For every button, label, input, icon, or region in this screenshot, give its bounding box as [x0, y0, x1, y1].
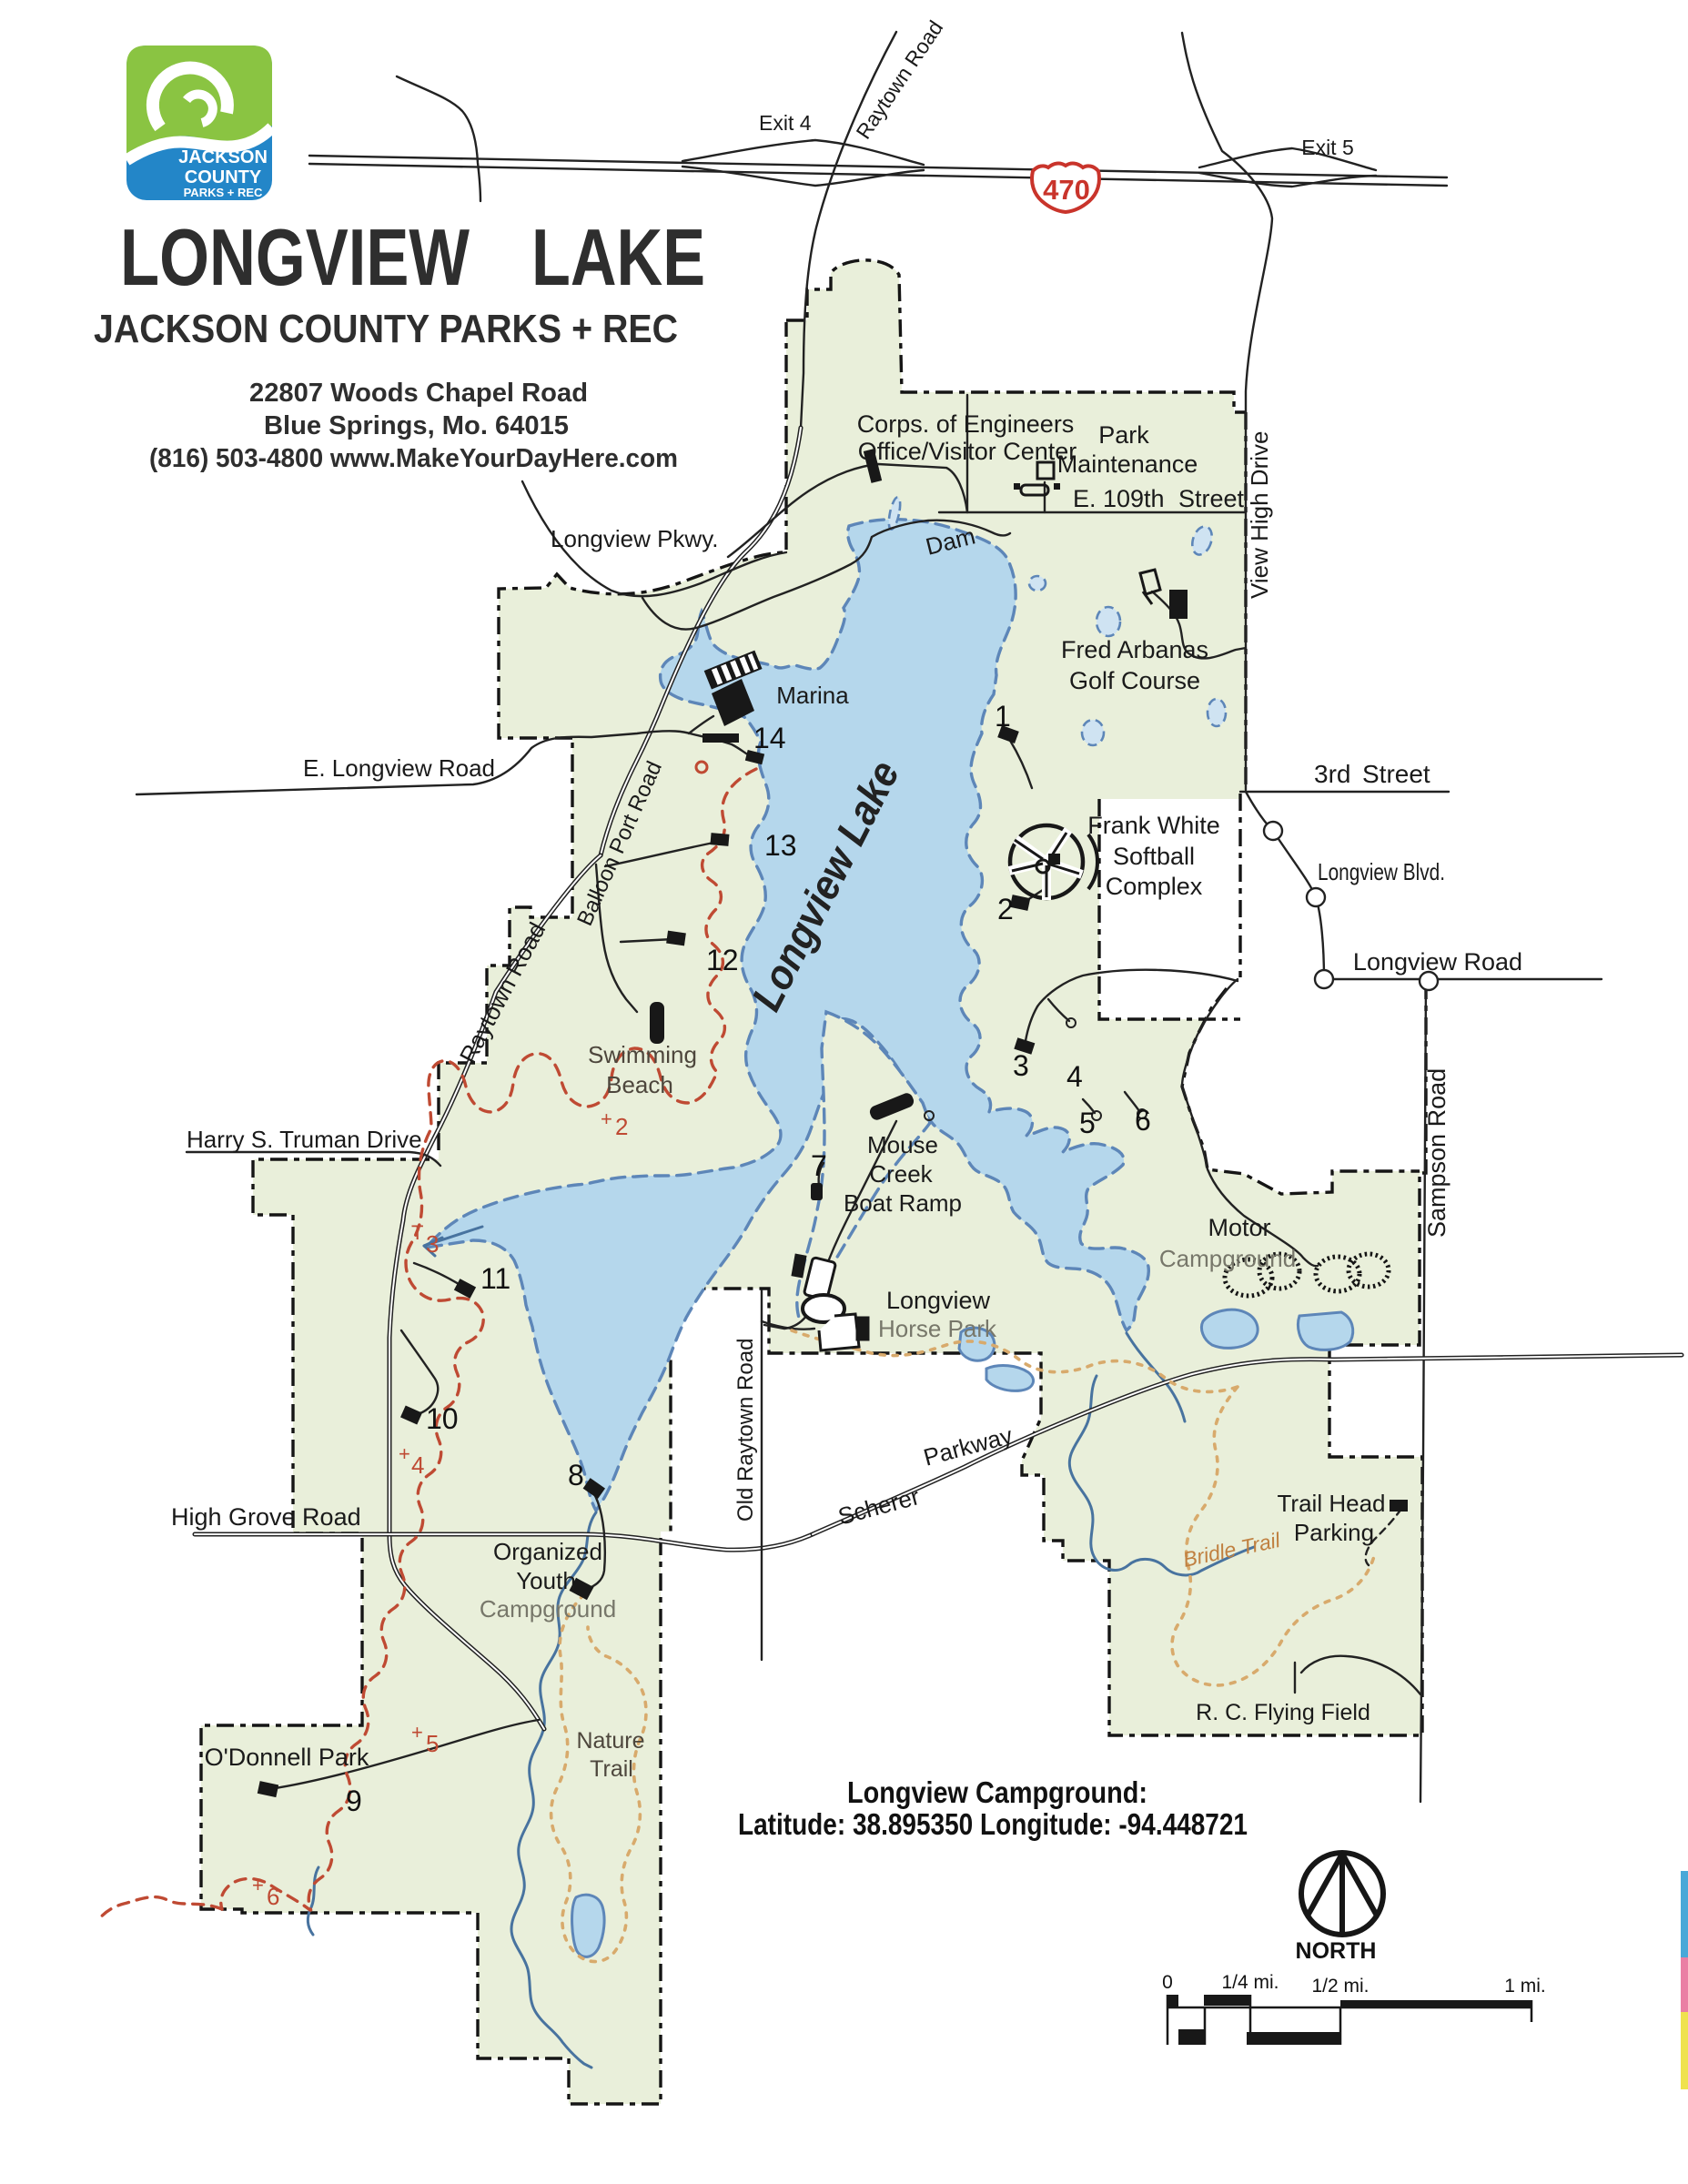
svg-text:Park: Park [1098, 421, 1149, 449]
svg-text:11: 11 [480, 1262, 510, 1295]
svg-text:Complex: Complex [1106, 873, 1203, 900]
svg-text:Trail Head: Trail Head [1278, 1490, 1386, 1517]
svg-text:Golf Course: Golf Course [1069, 667, 1200, 694]
svg-text:3: 3 [426, 1230, 439, 1258]
svg-text:Parking: Parking [1294, 1519, 1374, 1546]
svg-text:1/4 mi.: 1/4 mi. [1221, 1972, 1279, 1993]
svg-text:Swimming: Swimming [588, 1041, 697, 1068]
svg-text:LAKE: LAKE [531, 212, 705, 302]
svg-text:9: 9 [346, 1785, 362, 1817]
svg-text:1/2 mi.: 1/2 mi. [1311, 1976, 1369, 1997]
svg-text:Youth: Youth [516, 1567, 576, 1594]
svg-text:COUNTY: COUNTY [185, 167, 262, 187]
svg-text:High Grove Road: High Grove Road [171, 1503, 361, 1531]
svg-text:E. Longview Road: E. Longview Road [303, 754, 495, 782]
svg-text:Scherer: Scherer [835, 1482, 923, 1531]
svg-text:Motor: Motor [1208, 1214, 1270, 1241]
svg-text:1: 1 [995, 700, 1011, 733]
svg-text:JACKSON: JACKSON [178, 147, 268, 167]
svg-text:Marina: Marina [776, 682, 849, 709]
svg-text:Softball: Softball [1113, 843, 1195, 870]
svg-text:2: 2 [615, 1113, 628, 1140]
svg-text:0: 0 [1162, 1972, 1173, 1993]
svg-text:Latitude: 38.895350 Longitude: Latitude: 38.895350 Longitude: -94.44872… [738, 1807, 1248, 1841]
svg-text:470: 470 [1043, 174, 1090, 206]
svg-text:4: 4 [411, 1451, 424, 1479]
svg-text:+: + [601, 1107, 612, 1130]
svg-text:22807 Woods Chapel Road: 22807 Woods Chapel Road [249, 379, 588, 408]
svg-text:6: 6 [267, 1883, 279, 1910]
svg-text:Longview Campground:: Longview Campground: [847, 1775, 1147, 1809]
svg-text:Mouse: Mouse [867, 1131, 938, 1158]
svg-text:E. 109th: E. 109th [1073, 485, 1165, 512]
svg-text:Harry S. Truman Drive: Harry S. Truman Drive [187, 1126, 422, 1153]
svg-text:+: + [411, 1721, 423, 1744]
svg-text:Exit 4: Exit 4 [759, 111, 812, 135]
svg-text:3rd: 3rd [1314, 760, 1350, 788]
svg-text:13: 13 [764, 829, 797, 862]
svg-text:14: 14 [753, 722, 786, 754]
svg-text:Beach: Beach [606, 1071, 673, 1098]
svg-text:2: 2 [997, 893, 1014, 925]
svg-text:Maintenance: Maintenance [1057, 450, 1198, 478]
svg-text:5: 5 [1079, 1107, 1096, 1139]
svg-text:Old Raytown Road: Old Raytown Road [733, 1339, 758, 1522]
svg-text:Longview Road: Longview Road [1353, 948, 1522, 976]
svg-text:Horse Park: Horse Park [878, 1315, 997, 1342]
svg-text:O'Donnell Park: O'Donnell Park [205, 1744, 369, 1771]
svg-text:Raytown Road: Raytown Road [851, 16, 947, 144]
svg-text:10: 10 [426, 1402, 459, 1435]
svg-text:Campground: Campground [1159, 1245, 1296, 1272]
svg-text:Nature: Nature [576, 1728, 644, 1754]
svg-text:Campground: Campground [480, 1595, 616, 1623]
svg-text:LONGVIEW: LONGVIEW [120, 212, 470, 302]
svg-text:Street: Street [1178, 485, 1245, 512]
svg-text:Boat Ramp: Boat Ramp [844, 1189, 962, 1217]
svg-text:4: 4 [1066, 1060, 1083, 1093]
svg-text:1 mi.: 1 mi. [1504, 1976, 1546, 1997]
svg-text:(816) 503-4800 www.MakeYourD: (816) 503-4800 www.MakeYourDayHere.com [149, 444, 678, 473]
svg-text:Organized: Organized [493, 1538, 602, 1565]
svg-text:Corps. of Engineers: Corps. of Engineers [857, 410, 1075, 438]
svg-text:+: + [252, 1874, 264, 1896]
svg-text:12: 12 [706, 944, 739, 976]
svg-text:PARKS + REC: PARKS + REC [184, 186, 263, 199]
svg-text:Street: Street [1362, 760, 1430, 788]
svg-text:JACKSON COUNTY PARKS + REC: JACKSON COUNTY PARKS + REC [94, 307, 678, 351]
svg-text:6: 6 [1135, 1104, 1151, 1137]
svg-text:Office/Visitor Center: Office/Visitor Center [858, 438, 1077, 465]
svg-text:Longview Pkwy.: Longview Pkwy. [551, 525, 719, 552]
svg-text:Blue Springs, Mo. 64015: Blue Springs, Mo. 64015 [264, 411, 569, 440]
svg-text:Sampson Road: Sampson Road [1423, 1068, 1450, 1238]
svg-text:Trail: Trail [590, 1756, 633, 1782]
svg-text:R. C. Flying Field: R. C. Flying Field [1196, 1700, 1370, 1725]
svg-text:Exit 5: Exit 5 [1301, 136, 1354, 159]
svg-text:+: + [399, 1442, 410, 1465]
svg-text:Frank White: Frank White [1087, 812, 1220, 839]
svg-text:View High Drive: View High Drive [1246, 431, 1273, 599]
svg-text:Fred Arbanas: Fred Arbanas [1061, 636, 1208, 663]
svg-text:Longview Blvd.: Longview Blvd. [1318, 858, 1445, 885]
svg-text:3: 3 [1013, 1049, 1029, 1082]
svg-text:Longview: Longview [886, 1287, 991, 1314]
svg-text:7: 7 [811, 1149, 827, 1182]
svg-text:T: T [411, 1221, 423, 1244]
svg-text:8: 8 [568, 1459, 584, 1491]
svg-text:NORTH: NORTH [1296, 1938, 1377, 1964]
svg-text:Creek: Creek [869, 1160, 933, 1188]
svg-text:5: 5 [426, 1730, 439, 1757]
